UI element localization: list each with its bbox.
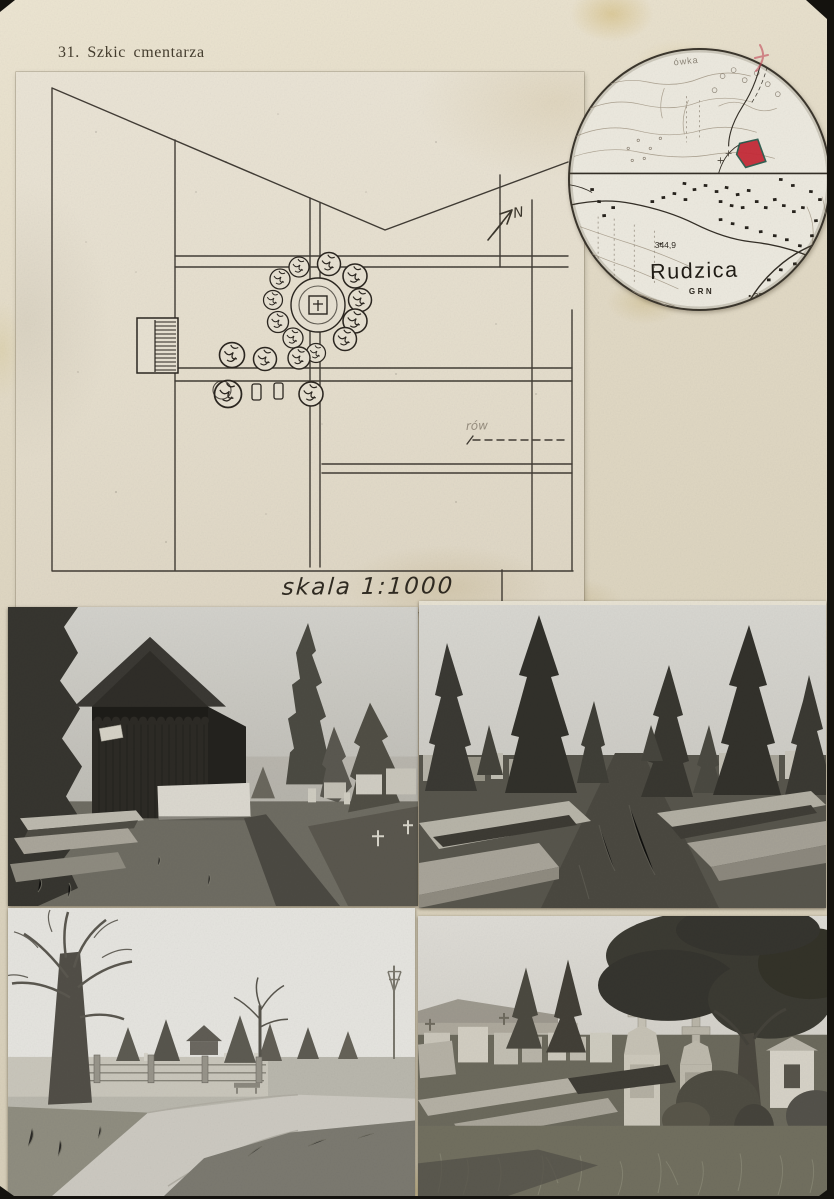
- tree-symbols: [213, 253, 372, 408]
- photo-gravestones: [418, 916, 827, 1196]
- cemetery-plan-drawing: N rów: [16, 72, 584, 612]
- map-inset: 344,9 Rudzica GRN 323,4 ówka: [568, 48, 831, 311]
- white-grave-slab: [157, 783, 250, 820]
- cemetery-sketch-sheet: N rów skala 1:1000: [16, 72, 584, 612]
- central-chapel-symbol: [291, 278, 345, 332]
- north-label: N: [512, 204, 526, 222]
- elevation-label-1: 344,9: [655, 240, 677, 250]
- map-admin-label: GRN: [689, 287, 714, 296]
- photo-chapel: [8, 607, 418, 906]
- grave-plot-symbol: [274, 383, 283, 399]
- page-title: 31. Szkic cmentarza: [58, 44, 205, 62]
- archive-card: 31. Szkic cmentarza: [0, 0, 827, 1196]
- grave-plot-symbol: [252, 384, 261, 400]
- mortuary-building-symbol: [137, 318, 178, 373]
- north-arrow-icon: N: [488, 204, 526, 240]
- photo-cemetery-road: [8, 908, 415, 1196]
- ditch-label: rów: [466, 418, 489, 433]
- scale-label: skala 1:1000: [281, 573, 455, 601]
- photo-cemetery-alley: [419, 601, 826, 908]
- map-place-label: Rudzica: [650, 257, 739, 284]
- scanned-archive-page: 31. Szkic cmentarza: [0, 0, 834, 1199]
- red-pencil-mark: [752, 42, 774, 78]
